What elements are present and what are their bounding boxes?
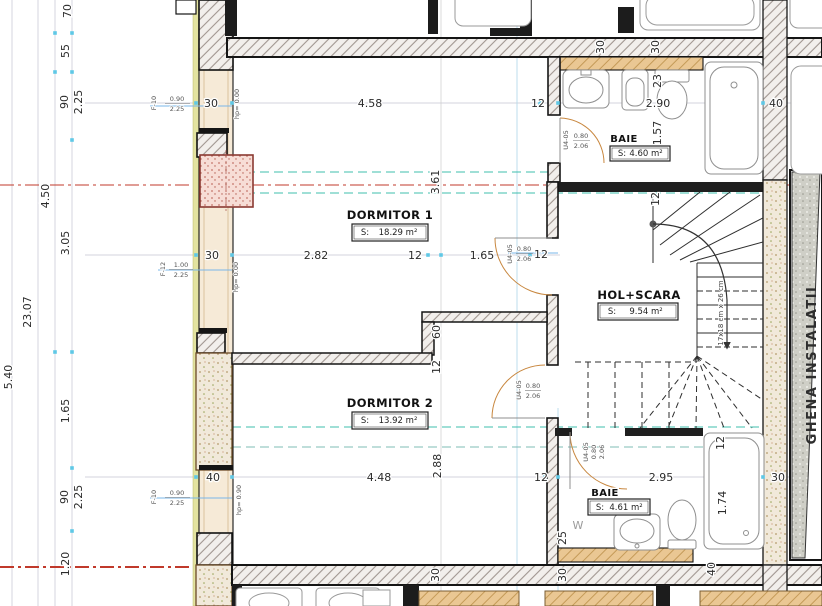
dim-label: 30 bbox=[771, 471, 785, 484]
shower-icon bbox=[791, 66, 822, 174]
window-height: 2.25 bbox=[174, 271, 188, 279]
concrete-column bbox=[200, 150, 253, 212]
dim-label: 1.20 bbox=[59, 552, 72, 577]
bathtub-icon bbox=[790, 0, 822, 28]
dim-label: 2.90 bbox=[646, 97, 671, 110]
bottom-wall bbox=[232, 565, 822, 585]
window-width: 1.00 bbox=[174, 261, 188, 269]
dim-label: 30 bbox=[594, 40, 607, 54]
dim-label: 5.40 bbox=[2, 365, 15, 390]
dim-label: 23.07 bbox=[21, 296, 34, 328]
floor-plan: GHENA INSTALATII bbox=[0, 0, 822, 606]
room-name: DORMITOR 1 bbox=[347, 208, 433, 222]
bathtub-icon bbox=[705, 62, 763, 174]
window-width: 0.90 bbox=[170, 95, 184, 103]
window-height: 2.25 bbox=[170, 499, 184, 507]
door-tag: U4-05 bbox=[515, 380, 523, 400]
room-label-dormitor1: DORMITOR 1 S: 18.29 m² bbox=[347, 208, 433, 241]
bidet-icon bbox=[622, 70, 648, 110]
ghena-shaft: GHENA INSTALATII bbox=[790, 170, 822, 560]
sill-height: hp= 0.90 bbox=[235, 485, 243, 515]
area-prefix: S: bbox=[596, 503, 604, 513]
dim-label: 55 bbox=[59, 44, 72, 58]
dim-label: 3.05 bbox=[59, 231, 72, 256]
bathtub-icon bbox=[704, 433, 764, 549]
dim-label: 30 bbox=[556, 568, 569, 582]
dim-label: 2.95 bbox=[649, 471, 674, 484]
dim-label: 1.65 bbox=[59, 399, 72, 424]
bath-top-window-wall bbox=[557, 57, 703, 70]
dim-label: 12 bbox=[408, 249, 422, 262]
dim-label: 70 bbox=[61, 4, 74, 18]
window-height: 2.25 bbox=[170, 105, 184, 113]
sill-height: hp= 0.00 bbox=[232, 262, 240, 292]
window-tag: F-10 bbox=[150, 96, 158, 110]
dim-label: 12 bbox=[534, 471, 548, 484]
door-tag: U4-05 bbox=[506, 244, 514, 264]
dim-label: 1.57 bbox=[651, 121, 664, 146]
area-value: 4.61 m² bbox=[609, 503, 642, 513]
dim-label: 4.50 bbox=[39, 184, 52, 209]
toilet-icon bbox=[668, 500, 696, 549]
stair-note: 17x18 cm x 26 cm bbox=[717, 280, 725, 345]
dim-label: 60 bbox=[430, 325, 443, 339]
dim-label: 90 bbox=[58, 95, 71, 109]
door-tag: U4-05 bbox=[582, 442, 590, 462]
dim-label: 40 bbox=[769, 97, 783, 110]
dim-label: 2.25 bbox=[72, 485, 85, 510]
room-name: BAIE bbox=[591, 488, 619, 499]
dim-label: 30 bbox=[429, 568, 442, 582]
door-width: 0.80 bbox=[590, 445, 598, 459]
area-value: 4.60 m² bbox=[629, 149, 662, 159]
ghena-label: GHENA INSTALATII bbox=[805, 286, 820, 445]
dormitor2-upper-wall bbox=[422, 312, 547, 322]
floor-plan-drawing: GHENA INSTALATII bbox=[0, 0, 822, 606]
dim-label: 90 bbox=[58, 490, 71, 504]
window-tag: F-12 bbox=[159, 262, 167, 276]
room-label-hol-scara: HOL+SCARA S: 9.54 m² bbox=[597, 288, 680, 320]
sink-icon bbox=[563, 70, 609, 108]
dim-label: 2.82 bbox=[304, 249, 329, 262]
dim-label: 1.74 bbox=[716, 491, 729, 516]
washer-mark: W bbox=[573, 519, 584, 532]
room-name: BAIE bbox=[610, 134, 638, 145]
bathtub-icon bbox=[455, 0, 531, 26]
sill-height: hp= 0.00 bbox=[233, 89, 241, 119]
window-width: 0.90 bbox=[170, 489, 184, 497]
dim-label: 40 bbox=[705, 562, 718, 576]
area-prefix: S: bbox=[608, 307, 616, 317]
dim-label: 4.58 bbox=[358, 97, 383, 110]
area-prefix: S: bbox=[618, 149, 626, 159]
dim-label: 2.25 bbox=[72, 90, 85, 115]
dormitor-divider-wall bbox=[232, 353, 432, 364]
window-tag: F-10 bbox=[150, 490, 158, 504]
dim-label: 12 bbox=[714, 436, 727, 450]
dim-label: 4.48 bbox=[367, 471, 392, 484]
top-wall bbox=[227, 38, 822, 57]
dim-label: 12 bbox=[430, 360, 443, 374]
area-value: 18.29 m² bbox=[379, 228, 418, 238]
area-prefix: S: bbox=[361, 228, 369, 238]
dim-label: 12 bbox=[649, 192, 662, 206]
door-height: 2.06 bbox=[526, 392, 540, 400]
door-height: 2.06 bbox=[574, 142, 588, 150]
door-width: 0.80 bbox=[517, 245, 531, 253]
sink-icon bbox=[614, 514, 660, 550]
dim-label: 12 bbox=[534, 248, 548, 261]
door-height: 2.06 bbox=[517, 255, 531, 263]
dim-label: 3.61 bbox=[429, 170, 442, 195]
door-height: 2.06 bbox=[598, 445, 606, 459]
dim-label: 25 bbox=[556, 531, 569, 545]
dim-label: 12 bbox=[531, 97, 545, 110]
dim-label: 30 bbox=[205, 249, 219, 262]
area-value: 9.54 m² bbox=[629, 307, 662, 317]
door-width: 0.80 bbox=[574, 132, 588, 140]
dim-label: 40 bbox=[206, 471, 220, 484]
dim-label: 2.88 bbox=[431, 454, 444, 479]
room-name: HOL+SCARA bbox=[597, 288, 680, 302]
dim-label: 1.65 bbox=[470, 249, 495, 262]
shower-icon bbox=[363, 590, 390, 606]
dim-label: 30 bbox=[649, 40, 662, 54]
hall-top-wall bbox=[558, 182, 763, 192]
door-width: 0.80 bbox=[526, 382, 540, 390]
area-prefix: S: bbox=[361, 416, 369, 426]
door-tag: U4-05 bbox=[562, 130, 570, 150]
room-label-dormitor2: DORMITOR 2 S: 13.92 m² bbox=[347, 396, 433, 429]
canvas-bg bbox=[0, 0, 822, 606]
dim-label: 23 bbox=[651, 74, 664, 88]
area-value: 13.92 m² bbox=[379, 416, 418, 426]
room-name: DORMITOR 2 bbox=[347, 396, 433, 410]
dim-label: 30 bbox=[204, 97, 218, 110]
